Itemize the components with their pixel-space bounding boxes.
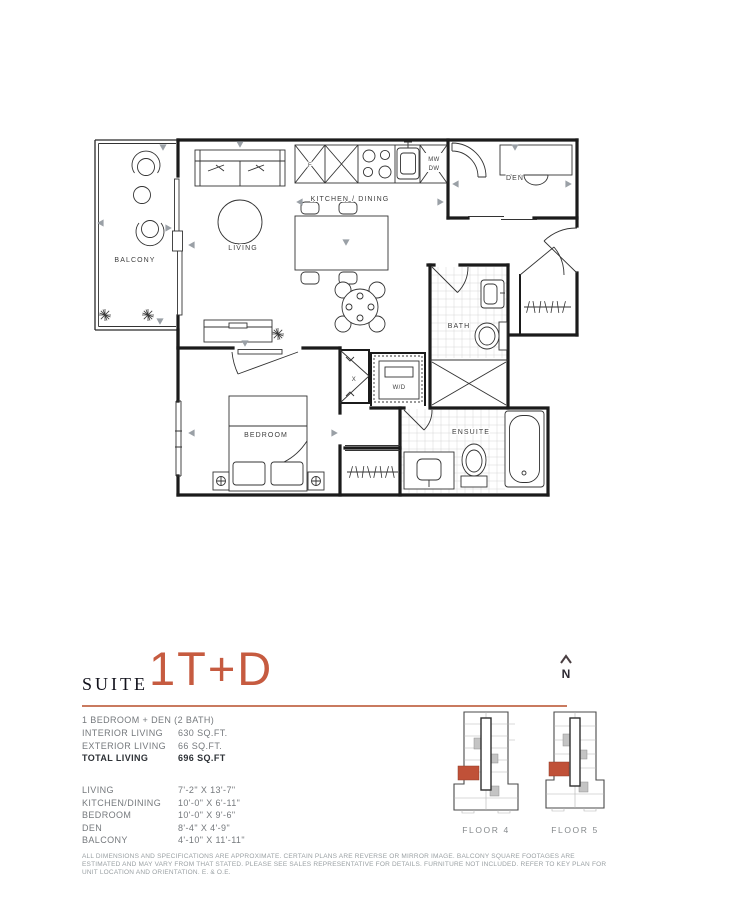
living-label: LIVING	[228, 245, 258, 252]
dining-table	[295, 216, 388, 270]
kitchen-dining-label: KITCHEN / DINING	[311, 196, 390, 203]
pillow	[271, 462, 303, 485]
floorplan-page: MW DW F	[0, 0, 740, 913]
key-plan-floor-4-label: FLOOR 4	[449, 825, 523, 835]
room-dimensions: LIVING 7'-2" X 13'-7" KITCHEN/DINING 10'…	[82, 784, 245, 847]
dim-row-den: DEN 8'-4" X 4'-9"	[82, 822, 245, 835]
key-plan-floor-5-label: FLOOR 5	[540, 825, 610, 835]
bedroom-window	[175, 401, 182, 476]
suite-summary: 1 BEDROOM + DEN (2 BATH) INTERIOR LIVING…	[82, 714, 228, 765]
toilet-tank	[499, 322, 507, 350]
bedroom-door-panel	[238, 350, 282, 355]
plant-icon	[272, 328, 284, 340]
unit-floor-plan: MW DW F	[88, 131, 588, 506]
north-arrow-icon	[558, 654, 574, 664]
shower	[432, 362, 506, 405]
suite-prefix-label: SUITE	[82, 674, 148, 695]
pillow	[233, 462, 265, 485]
fridge-label: F	[308, 163, 312, 169]
kitchen-counters: MW DW F	[295, 142, 447, 183]
dim-row-living: LIVING 7'-2" X 13'-7"	[82, 784, 245, 797]
north-indicator: N	[557, 651, 575, 679]
wd-label: W/D	[393, 385, 406, 391]
key-plan-floor-5-map	[540, 710, 610, 814]
plant-icon	[142, 309, 154, 321]
north-letter: N	[557, 669, 575, 679]
spec-row-exterior: EXTERIOR LIVING 66 SQ.FT.	[82, 740, 228, 753]
bath-door	[432, 267, 468, 293]
bath-label: BATH	[448, 323, 471, 330]
balcony-label: BALCONY	[114, 257, 155, 264]
entry-door	[544, 228, 577, 273]
den-label: DEN	[506, 175, 524, 182]
ensuite-label: ENSUITE	[452, 429, 490, 436]
bedroom-furniture	[213, 396, 324, 491]
dim-row-kitchen: KITCHEN/DINING 10'-0" X 6'-11"	[82, 797, 245, 810]
closet-door	[520, 247, 564, 275]
entry-coat-closet	[524, 301, 571, 313]
microwave-label: MW	[428, 157, 439, 163]
key-plan-floor-4-map	[449, 710, 523, 814]
key-plan-floor-4: FLOOR 4	[449, 710, 523, 835]
linen-closet-label: X	[352, 377, 356, 383]
balcony-table	[134, 187, 151, 204]
ensuite-door	[404, 410, 432, 430]
balcony-room	[95, 140, 178, 330]
bedroom-door	[232, 352, 298, 374]
highlighted-unit	[458, 766, 479, 780]
disclaimer-text: ALL DIMENSIONS AND SPECIFICATIONS ARE AP…	[82, 853, 610, 877]
spec-row-total: TOTAL LIVING 696 SQ.FT	[82, 752, 228, 765]
plant-icon	[99, 309, 111, 321]
dishwasher-label: DW	[429, 166, 440, 172]
key-plan-floor-5: FLOOR 5	[540, 710, 610, 835]
accent-divider	[82, 705, 567, 707]
suite-type-line: 1 BEDROOM + DEN (2 BATH)	[82, 714, 228, 727]
ensuite-toilet-tank	[461, 476, 487, 487]
dim-row-bedroom: BEDROOM 10'-0" X 9'-6"	[82, 809, 245, 822]
dim-row-balcony: BALCONY 4'-10" X 11'-11"	[82, 834, 245, 847]
suite-name: 1T+D	[149, 645, 273, 692]
spec-row-interior: INTERIOR LIVING 630 SQ.FT.	[82, 727, 228, 740]
area-rug	[218, 200, 262, 244]
key-plans: FLOOR 4 FLOOR 5	[449, 710, 610, 835]
bath-fixtures	[432, 280, 507, 405]
dining-furniture	[295, 202, 388, 332]
desk	[500, 145, 572, 175]
highlighted-unit	[549, 762, 569, 776]
cooktop	[363, 150, 375, 162]
round-table	[342, 289, 378, 325]
bedroom-label: BEDROOM	[244, 432, 288, 439]
bedroom-closet	[347, 466, 398, 478]
